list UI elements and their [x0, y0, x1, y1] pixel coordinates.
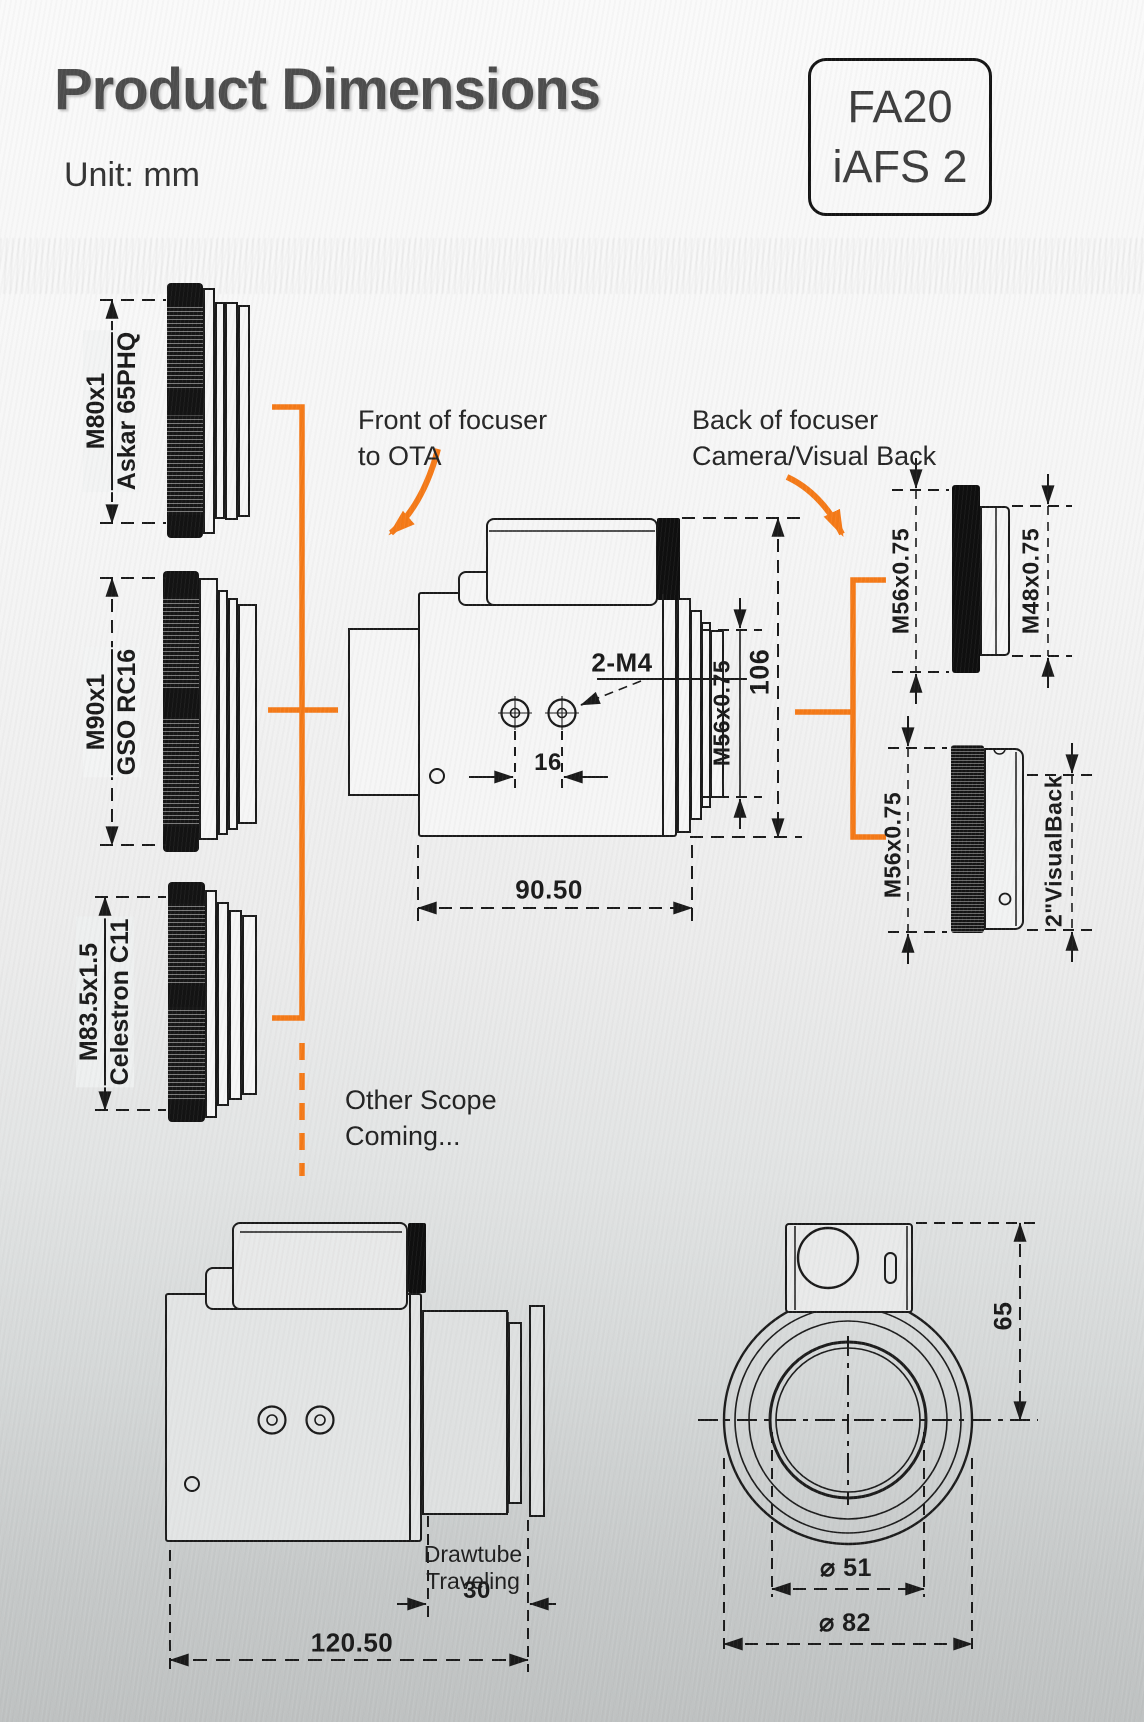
diameter-value: 51	[843, 1554, 872, 1582]
scope-label: GSO RC16	[113, 649, 141, 775]
motor-offset-label: 65	[990, 1302, 1019, 1331]
scope-label: Askar 65PHQ	[113, 332, 141, 490]
adapter-m48-back-thread-label: M48x0.75	[1018, 528, 1045, 634]
overall-length-label: 120.50	[311, 1628, 394, 1659]
overall-height-label: 106	[745, 649, 776, 696]
side-view-dims	[170, 1232, 556, 1672]
back-label-line1: Back of focuser	[692, 402, 936, 438]
product-dimensions-sheet: Product Dimensions Unit: mm FA20 iAFS 2	[0, 0, 1144, 1722]
adapter-label-celestron: M83.5x1.5 Celestron C11	[76, 917, 134, 1088]
model-badge-line2: iAFS 2	[832, 137, 967, 197]
adapter-m48-front-thread-label: M56x0.75	[888, 528, 915, 634]
adapter-label-gso: M90x1 GSO RC16	[83, 647, 141, 777]
model-badge: FA20 iAFS 2	[808, 58, 992, 216]
screw-callout-label: 2-M4	[591, 648, 652, 679]
other-scope-line1: Other Scope	[345, 1082, 497, 1118]
unit-label: Unit: mm	[64, 156, 200, 195]
page-title: Product Dimensions	[54, 56, 600, 123]
other-scope-line2: Coming...	[345, 1118, 497, 1154]
diameter-value: 82	[842, 1609, 871, 1637]
scope-label: Celestron C11	[106, 919, 134, 1086]
travel-dimension-label: 30	[463, 1577, 491, 1605]
diameter-symbol: ⌀	[819, 1609, 835, 1637]
thread-label: M90x1	[83, 649, 113, 775]
diameter-symbol: ⌀	[820, 1554, 836, 1582]
other-scope-label: Other Scope Coming...	[345, 1082, 497, 1154]
drawtube-label-line1: Drawtube	[424, 1541, 522, 1568]
thread-label: M83.5x1.5	[76, 919, 106, 1086]
orange-bracket-right	[795, 580, 886, 837]
back-label-line2: Camera/Visual Back	[692, 438, 936, 474]
inner-diameter-label: ⌀ 51	[820, 1553, 872, 1583]
main-view-dims	[418, 518, 802, 922]
back-of-focuser-arrow	[787, 477, 842, 534]
front-of-focuser-label: Front of focuser to OTA	[358, 402, 547, 474]
adapter-visualback-label: 2"VisualBack	[1041, 775, 1068, 927]
adapter-label-askar: M80x1 Askar 65PHQ	[83, 330, 141, 492]
screw-spacing-label: 16	[534, 749, 562, 777]
dimension-linework	[0, 0, 1144, 1722]
drawtube-thread-label: M56x0.75	[709, 660, 736, 766]
outer-diameter-label: ⌀ 82	[819, 1608, 871, 1638]
orange-bracket-left	[268, 407, 338, 1176]
thread-label: M80x1	[83, 332, 113, 490]
model-badge-line1: FA20	[847, 77, 952, 137]
front-view-dims	[698, 1223, 1038, 1652]
adapter-visualback-front-thread-label: M56x0.75	[880, 792, 907, 898]
back-of-focuser-label: Back of focuser Camera/Visual Back	[692, 402, 936, 474]
front-label-line2: to OTA	[358, 438, 547, 474]
front-label-line1: Front of focuser	[358, 402, 547, 438]
body-length-label: 90.50	[515, 875, 583, 906]
